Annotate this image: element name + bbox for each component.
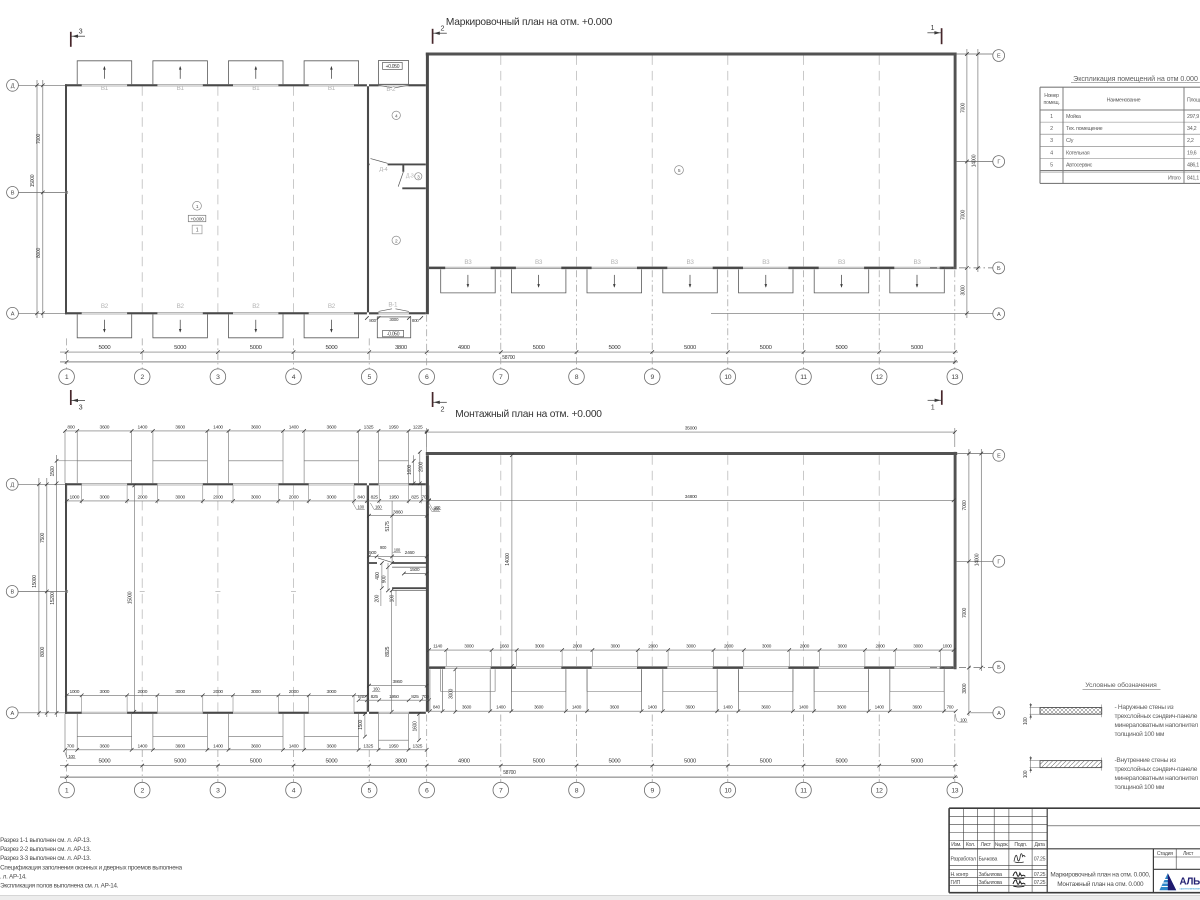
svg-text:5000: 5000 [250, 345, 263, 351]
svg-text:840: 840 [357, 494, 365, 500]
svg-text:В2: В2 [328, 303, 336, 310]
svg-text:13: 13 [951, 374, 958, 381]
svg-text:Условные обозначения: Условные обозначения [1085, 681, 1157, 689]
svg-text:3800: 3800 [395, 345, 408, 351]
svg-text:35000: 35000 [685, 426, 698, 432]
svg-text:1600: 1600 [412, 721, 418, 731]
svg-text:3800: 3800 [395, 759, 408, 765]
svg-text:В1: В1 [252, 85, 260, 92]
svg-text:В1: В1 [328, 85, 336, 92]
svg-text:А: А [997, 711, 1001, 717]
svg-text:3000: 3000 [610, 644, 620, 649]
svg-text:В3: В3 [611, 259, 619, 266]
svg-text:12: 12 [876, 374, 883, 381]
svg-text:3860: 3860 [393, 679, 403, 685]
svg-text:3: 3 [79, 402, 83, 411]
svg-text:3600: 3600 [100, 743, 110, 749]
svg-text:1400: 1400 [723, 705, 733, 710]
svg-text:1660: 1660 [500, 644, 510, 649]
svg-text:1500: 1500 [410, 567, 420, 573]
svg-text:АЛЬЯ: АЛЬЯ [1180, 877, 1200, 888]
svg-text:Дата: Дата [1034, 842, 1045, 848]
svg-text:1000: 1000 [942, 644, 952, 649]
svg-text:3: 3 [1050, 138, 1053, 144]
svg-text:3000: 3000 [913, 644, 923, 649]
svg-text:3: 3 [79, 27, 83, 36]
svg-text:1225: 1225 [413, 425, 423, 431]
svg-text:В3: В3 [686, 259, 694, 266]
svg-text:Лист: Лист [981, 842, 992, 848]
svg-text:1500: 1500 [50, 466, 56, 476]
svg-text:160: 160 [375, 505, 382, 510]
svg-text:1950: 1950 [389, 694, 399, 700]
svg-text:1140: 1140 [433, 644, 443, 649]
svg-text:825: 825 [411, 494, 419, 500]
svg-text:841,1: 841,1 [1187, 175, 1199, 181]
svg-text:10: 10 [724, 374, 731, 381]
svg-text:3000: 3000 [960, 285, 966, 295]
svg-text:4: 4 [292, 374, 296, 381]
svg-text:5000: 5000 [533, 345, 546, 351]
svg-text:1500: 1500 [358, 719, 364, 729]
svg-text:А: А [11, 311, 15, 317]
svg-text:2: 2 [140, 374, 144, 381]
svg-text:В-1: В-1 [388, 302, 398, 309]
svg-text:3600: 3600 [534, 705, 544, 710]
svg-text:Котельная: Котельная [1066, 150, 1090, 156]
svg-text:5000: 5000 [98, 759, 111, 765]
svg-text:4900: 4900 [458, 759, 471, 765]
svg-text:С/у: С/у [1066, 138, 1074, 144]
svg-text:7000: 7000 [960, 210, 966, 220]
svg-text:500: 500 [369, 550, 377, 556]
svg-text:700: 700 [421, 494, 429, 500]
svg-text:2000: 2000 [419, 462, 425, 472]
svg-text:1: 1 [196, 228, 199, 234]
svg-text:3: 3 [216, 374, 220, 381]
svg-text:Автосервис: Автосервис [1066, 162, 1093, 168]
svg-text:400: 400 [375, 572, 381, 580]
svg-text:минераловатным наполнител: минераловатным наполнител [1115, 775, 1199, 782]
svg-text:3600: 3600 [251, 425, 261, 431]
svg-text:4: 4 [1050, 150, 1053, 156]
svg-text:5000: 5000 [911, 345, 924, 351]
svg-text:100: 100 [960, 717, 967, 722]
svg-text:В1: В1 [177, 85, 185, 92]
svg-text:В3: В3 [464, 259, 472, 266]
svg-text:Забьялова: Забьялова [979, 872, 1003, 878]
svg-text:6: 6 [425, 374, 429, 381]
svg-text:1400: 1400 [289, 425, 299, 431]
svg-text:3600: 3600 [610, 705, 620, 710]
svg-text:14000: 14000 [975, 553, 981, 566]
svg-text:7000: 7000 [962, 500, 968, 510]
svg-text:Номер: Номер [1044, 93, 1059, 99]
svg-text:840: 840 [358, 694, 366, 700]
svg-text:В1: В1 [101, 85, 109, 92]
svg-text:Изм.: Изм. [951, 842, 961, 848]
svg-text:07.25: 07.25 [1034, 856, 1046, 862]
svg-text:5000: 5000 [325, 759, 338, 765]
svg-text:см. л. АР-14.: см. л. АР-14. [0, 874, 27, 881]
svg-text:трехслойных сэндвич-панеле: трехслойных сэндвич-панеле [1115, 765, 1198, 773]
svg-text:1950: 1950 [389, 743, 399, 749]
svg-text:1: 1 [65, 374, 69, 381]
svg-text:15200: 15200 [50, 592, 56, 605]
svg-text:200: 200 [374, 594, 380, 602]
svg-text:В3: В3 [762, 259, 770, 266]
svg-text:11: 11 [800, 788, 807, 795]
svg-text:2,2: 2,2 [1187, 138, 1194, 144]
svg-text:Забьялова: Забьялова [979, 880, 1003, 886]
svg-text:5000: 5000 [684, 345, 697, 351]
svg-text:1325: 1325 [413, 743, 423, 749]
svg-text:2000: 2000 [800, 644, 810, 649]
svg-text:Стадия: Стадия [1157, 851, 1173, 857]
svg-text:4900: 4900 [458, 345, 471, 351]
svg-text:Д: Д [11, 83, 15, 89]
svg-text:В3: В3 [913, 259, 921, 266]
svg-text:1950: 1950 [389, 494, 399, 500]
svg-text:9: 9 [650, 374, 654, 381]
svg-text:3600: 3600 [837, 705, 847, 710]
svg-text:В2: В2 [177, 303, 185, 310]
svg-text:5000: 5000 [835, 759, 848, 765]
svg-text:3600: 3600 [761, 705, 771, 710]
svg-text:100: 100 [1023, 717, 1029, 725]
svg-text:5000: 5000 [325, 345, 338, 351]
svg-text:1325: 1325 [363, 743, 373, 749]
svg-text:3000: 3000 [251, 494, 261, 500]
svg-text:15000: 15000 [30, 174, 36, 187]
svg-text:900: 900 [380, 545, 387, 550]
svg-text:1325: 1325 [364, 425, 374, 431]
svg-text:1: 1 [931, 23, 935, 32]
svg-text:толщиной 100 мм: толщиной 100 мм [1115, 730, 1165, 738]
svg-text:2000: 2000 [213, 494, 223, 500]
svg-text:7000: 7000 [960, 103, 966, 113]
svg-text:5175: 5175 [385, 521, 391, 531]
svg-text:7000: 7000 [962, 608, 968, 618]
svg-text:2: 2 [1050, 126, 1053, 132]
svg-text:3600: 3600 [175, 743, 185, 749]
svg-text:Кол.: Кол. [966, 842, 975, 848]
svg-text:58700: 58700 [503, 770, 516, 776]
svg-text:+0.050: +0.050 [386, 64, 400, 70]
svg-text:А: А [997, 312, 1001, 318]
svg-text:825: 825 [371, 694, 379, 700]
svg-text:3600: 3600 [251, 743, 261, 749]
svg-text:8: 8 [575, 788, 579, 795]
svg-text:Площ: Площ [1187, 98, 1200, 104]
svg-text:Е: Е [997, 54, 1001, 60]
svg-text:5000: 5000 [835, 345, 848, 351]
svg-text:Подп.: Подп. [1014, 842, 1026, 848]
svg-text:700: 700 [421, 694, 429, 700]
svg-text:5000: 5000 [608, 759, 621, 765]
svg-text:8000: 8000 [40, 647, 46, 657]
svg-text:100: 100 [1023, 770, 1029, 778]
svg-text:3600: 3600 [327, 743, 337, 749]
svg-text:1400: 1400 [496, 705, 506, 710]
svg-text:825: 825 [371, 494, 379, 500]
svg-text:Г: Г [997, 160, 1000, 166]
svg-text:800: 800 [369, 318, 376, 323]
svg-text:В-2: В-2 [386, 86, 396, 93]
svg-text:№док.: №док. [995, 842, 1009, 848]
svg-text:Лист: Лист [1183, 851, 1194, 857]
svg-text:1400: 1400 [799, 705, 809, 710]
svg-text:Наименование: Наименование [1107, 98, 1141, 104]
svg-text:2: 2 [440, 24, 444, 33]
svg-text:3000: 3000 [838, 644, 848, 649]
svg-text:В3: В3 [838, 259, 846, 266]
svg-text:- Наружные стены из: - Наружные стены из [1115, 704, 1174, 711]
svg-text:3600: 3600 [685, 705, 695, 710]
svg-text:1600: 1600 [407, 465, 413, 475]
svg-text:2000: 2000 [648, 644, 658, 649]
svg-text:6: 6 [425, 788, 429, 795]
svg-text:100: 100 [434, 505, 441, 510]
svg-text:1400: 1400 [137, 425, 147, 431]
svg-text:2000: 2000 [875, 644, 885, 649]
svg-text:В2: В2 [252, 303, 260, 310]
svg-text:Бычкова: Бычкова [979, 857, 998, 863]
svg-text:5000: 5000 [760, 345, 773, 351]
svg-text:1400: 1400 [137, 743, 147, 749]
svg-text:297,9: 297,9 [1187, 114, 1199, 120]
svg-text:3000: 3000 [175, 689, 185, 695]
svg-text:Мойка: Мойка [1066, 113, 1081, 120]
svg-text:1: 1 [65, 788, 69, 795]
svg-text:5. Экспликация полов выполнена: 5. Экспликация полов выполнена см. л. АР… [0, 883, 119, 890]
svg-text:1: 1 [931, 403, 935, 412]
svg-text:1: 1 [1050, 114, 1053, 120]
svg-text:помещ.: помещ. [1043, 100, 1059, 106]
svg-text:2. Разрез 2-2 выполнен см. л.: 2. Разрез 2-2 выполнен см. л. АР-13. [0, 846, 91, 853]
svg-text:3000: 3000 [686, 644, 696, 649]
svg-text:9: 9 [650, 788, 654, 795]
svg-text:1400: 1400 [648, 705, 658, 710]
svg-text:4. Спецификация заполнения око: 4. Спецификация заполнения оконных и две… [0, 864, 183, 871]
svg-text:5: 5 [1050, 162, 1053, 168]
svg-text:14000: 14000 [971, 154, 977, 167]
svg-text:8: 8 [575, 374, 579, 381]
svg-text:5000: 5000 [533, 759, 546, 765]
svg-text:19,6: 19,6 [1187, 150, 1197, 156]
svg-text:3000: 3000 [449, 689, 455, 699]
svg-text:800: 800 [67, 425, 75, 431]
svg-text:1400: 1400 [289, 743, 299, 749]
svg-text:100: 100 [389, 594, 395, 602]
svg-text:07.25: 07.25 [1034, 872, 1046, 878]
svg-text:10: 10 [724, 788, 731, 795]
svg-text:-0.050: -0.050 [387, 332, 400, 338]
svg-text:В: В [11, 190, 15, 196]
svg-text:800: 800 [412, 318, 419, 323]
svg-text:Монтажный план на отм. +0.000: Монтажный план на отм. +0.000 [455, 409, 602, 420]
svg-text:строительная компания: строительная компания [1180, 888, 1200, 891]
svg-text:2000: 2000 [213, 689, 223, 695]
svg-text:-Внутренние стены из: -Внутренние стены из [1115, 757, 1176, 764]
svg-text:100: 100 [358, 505, 365, 510]
svg-text:3: 3 [216, 788, 220, 795]
svg-text:+0.000: +0.000 [190, 217, 204, 223]
svg-text:Итого: Итого [1168, 175, 1181, 181]
svg-text:2: 2 [440, 405, 444, 414]
svg-text:2000: 2000 [289, 689, 299, 695]
svg-text:3600: 3600 [100, 425, 110, 431]
svg-text:3000: 3000 [762, 644, 772, 649]
svg-text:100: 100 [68, 754, 75, 759]
svg-text:1400: 1400 [572, 705, 582, 710]
svg-text:700: 700 [67, 743, 75, 749]
svg-text:Маркировочный план на отм. +0.: Маркировочный план на отм. +0.000 [446, 17, 613, 28]
svg-text:3000: 3000 [464, 644, 474, 649]
svg-text:486,1: 486,1 [1187, 162, 1199, 168]
svg-text:840: 840 [433, 705, 441, 710]
svg-text:В2: В2 [101, 303, 109, 310]
svg-text:В: В [10, 589, 14, 595]
svg-text:5000: 5000 [760, 759, 773, 765]
svg-text:3600: 3600 [327, 425, 337, 431]
svg-text:3000: 3000 [327, 689, 337, 695]
svg-text:825: 825 [411, 694, 419, 700]
svg-text:1400: 1400 [213, 425, 223, 431]
svg-text:Д: Д [10, 482, 14, 488]
svg-text:14000: 14000 [505, 553, 511, 566]
svg-text:2000: 2000 [137, 494, 147, 500]
svg-text:3000: 3000 [100, 689, 110, 695]
svg-text:58700: 58700 [502, 355, 515, 361]
svg-text:толщиной 100 мм: толщиной 100 мм [1115, 783, 1165, 791]
svg-text:07.25: 07.25 [1034, 880, 1046, 886]
svg-text:3000: 3000 [962, 683, 968, 693]
svg-text:12: 12 [876, 788, 883, 795]
svg-text:Экспликация помещений на отм 0: Экспликация помещений на отм 0.000 [1073, 75, 1198, 83]
svg-text:Маркировочный план на отм. 0.0: Маркировочный план на отм. 0.000, [1050, 871, 1150, 879]
svg-text:34800: 34800 [685, 494, 698, 500]
svg-text:3000: 3000 [100, 494, 110, 500]
svg-text:5000: 5000 [608, 345, 621, 351]
svg-text:160: 160 [373, 687, 380, 692]
svg-text:Тех. помещение: Тех. помещение [1066, 126, 1103, 132]
svg-text:2000: 2000 [724, 644, 734, 649]
svg-text:34,2: 34,2 [1187, 126, 1197, 132]
svg-text:1950: 1950 [389, 425, 399, 431]
svg-text:7: 7 [499, 374, 503, 381]
svg-text:А: А [10, 711, 14, 717]
svg-text:3000: 3000 [251, 689, 261, 695]
svg-text:Г: Г [997, 559, 1000, 565]
svg-text:Н. контр: Н. контр [951, 872, 969, 878]
svg-text:4: 4 [292, 788, 296, 795]
svg-text:3600: 3600 [462, 705, 472, 710]
svg-text:2: 2 [140, 788, 144, 795]
svg-text:900: 900 [381, 575, 387, 583]
svg-text:15000: 15000 [127, 591, 133, 604]
svg-text:Д-3: Д-3 [406, 173, 414, 179]
svg-text:5000: 5000 [250, 759, 263, 765]
svg-text:3600: 3600 [912, 705, 922, 710]
svg-text:ГИП: ГИП [951, 880, 961, 886]
svg-text:3000: 3000 [175, 494, 185, 500]
svg-text:5000: 5000 [911, 759, 924, 765]
svg-text:3000: 3000 [327, 494, 337, 500]
svg-text:3000: 3000 [389, 317, 399, 322]
svg-text:8925: 8925 [385, 646, 391, 656]
svg-text:1000: 1000 [69, 689, 79, 695]
svg-text:Разработал: Разработал [951, 857, 977, 863]
svg-text:Д-4: Д-4 [379, 167, 388, 173]
svg-text:5000: 5000 [174, 759, 187, 765]
svg-text:В3: В3 [535, 259, 543, 266]
svg-text:1. Разрез 1-1 выполнен см. л.: 1. Разрез 1-1 выполнен см. л. АР-13. [0, 837, 91, 844]
svg-text:1400: 1400 [875, 705, 885, 710]
svg-text:11: 11 [800, 374, 807, 381]
svg-text:2000: 2000 [289, 494, 299, 500]
svg-text:700: 700 [946, 705, 954, 710]
svg-text:5000: 5000 [174, 345, 187, 351]
svg-text:Монтажный план на отм. 0.000: Монтажный план на отм. 0.000 [1057, 880, 1144, 888]
svg-text:трехслойных сэндвич-панеле: трехслойных сэндвич-панеле [1115, 712, 1198, 720]
svg-text:15000: 15000 [32, 575, 38, 588]
svg-text:5000: 5000 [684, 759, 697, 765]
svg-text:13: 13 [951, 788, 958, 795]
svg-text:100: 100 [394, 547, 401, 552]
svg-text:7: 7 [499, 788, 503, 795]
svg-text:7500: 7500 [40, 533, 46, 543]
svg-text:3. Разрез 3-3 выполнен см. л.: 3. Разрез 3-3 выполнен см. л. АР-13. [0, 855, 91, 862]
svg-text:3000: 3000 [535, 644, 545, 649]
svg-text:2000: 2000 [137, 689, 147, 695]
svg-text:5: 5 [367, 374, 371, 381]
svg-text:2460: 2460 [405, 550, 415, 556]
svg-text:5000: 5000 [98, 345, 111, 351]
svg-text:2000: 2000 [573, 644, 583, 649]
svg-text:1400: 1400 [213, 743, 223, 749]
svg-text:3600: 3600 [175, 425, 185, 431]
svg-text:5: 5 [367, 788, 371, 795]
svg-text:1000: 1000 [69, 494, 79, 500]
svg-text:минераловатным наполнител: минераловатным наполнител [1115, 722, 1199, 729]
svg-text:Е: Е [997, 453, 1001, 459]
svg-text:3860: 3860 [393, 509, 403, 515]
